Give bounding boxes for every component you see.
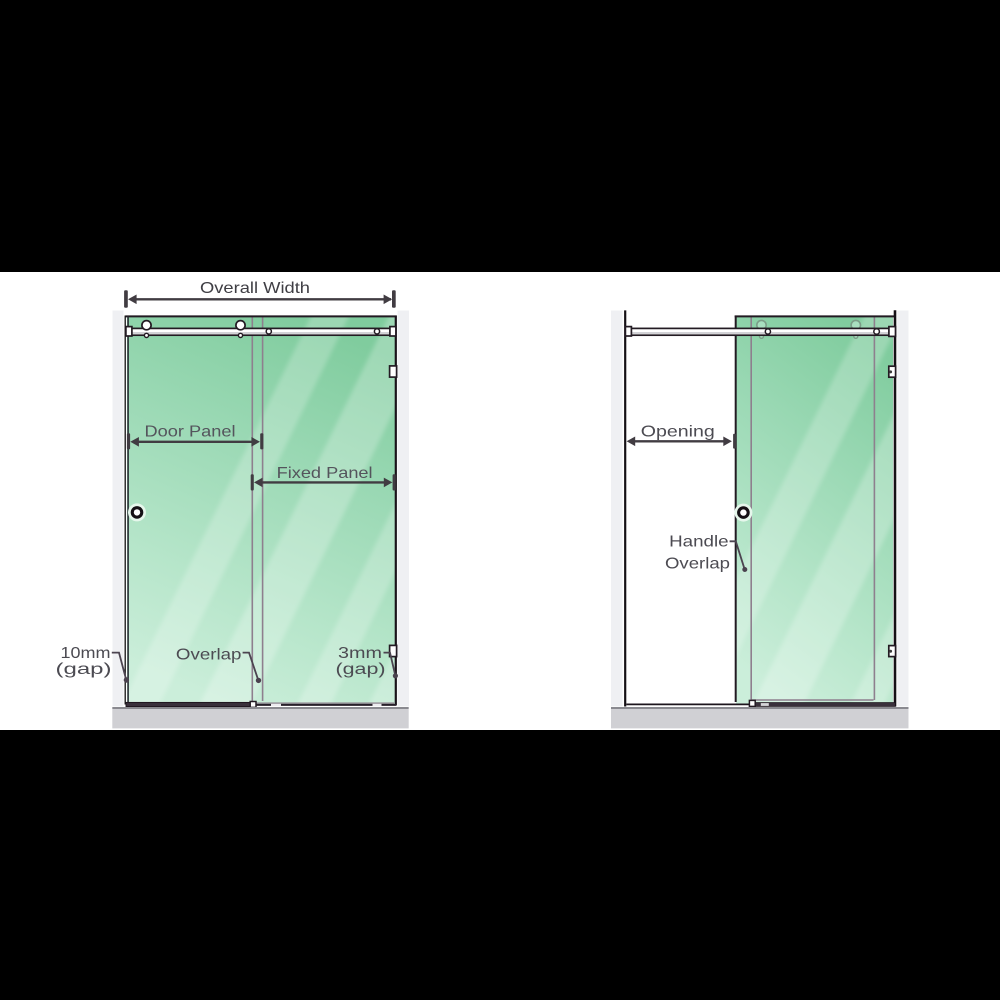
svg-text:10mm: 10mm <box>61 645 111 662</box>
svg-text:Overall Width: Overall Width <box>200 280 310 297</box>
svg-text:Door Panel: Door Panel <box>145 424 236 441</box>
svg-text:(gap): (gap) <box>56 661 112 678</box>
svg-text:Handle: Handle <box>669 534 729 551</box>
svg-text:Fixed Panel: Fixed Panel <box>277 465 373 482</box>
svg-text:Overlap: Overlap <box>176 647 242 664</box>
svg-text:(gap): (gap) <box>336 661 386 678</box>
svg-text:Opening: Opening <box>641 423 715 440</box>
svg-text:Overlap: Overlap <box>665 556 730 573</box>
svg-text:3mm: 3mm <box>338 645 382 662</box>
